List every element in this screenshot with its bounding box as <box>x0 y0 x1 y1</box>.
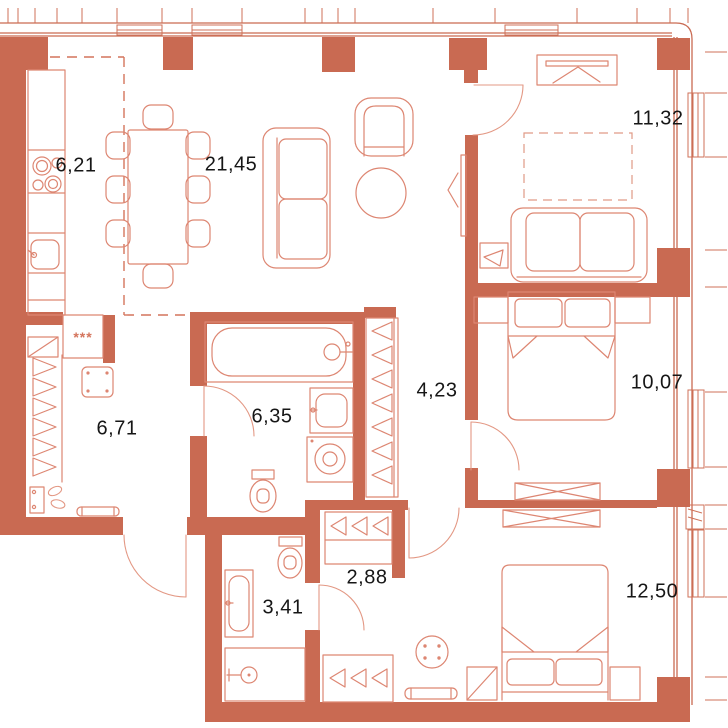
facade-ticks-right <box>705 52 727 700</box>
stool-icon <box>82 367 113 397</box>
room-area-label-shower-room: 3,41 <box>263 597 304 620</box>
bed-10-icon <box>508 292 615 420</box>
facade-ticks-top <box>8 8 688 23</box>
hallway-closet-icon <box>366 318 398 497</box>
room-area-label-bedroom-right: 10,07 <box>631 372 684 395</box>
shoe-cabinet-icon <box>28 337 58 357</box>
armchair-icon <box>355 98 413 156</box>
shoe-rack-icon <box>30 484 66 513</box>
wardrobe-sliding-icon <box>515 483 600 500</box>
shower-tray-icon <box>225 648 305 701</box>
room-area-label-hallway: 4,23 <box>417 380 458 403</box>
door-bedroom-10 <box>471 422 519 470</box>
kitchen-sink-icon <box>28 240 59 269</box>
washing-machine-icon <box>307 437 353 482</box>
room-area-label-hall: 2,88 <box>347 567 388 590</box>
wardrobe-hangers-icon <box>323 655 393 702</box>
walls <box>0 37 690 722</box>
nightstand-icon <box>610 667 640 700</box>
room-area-label-bedroom-top-right: 11,32 <box>632 108 683 131</box>
entry-closet-hangers-icon <box>33 355 62 482</box>
floor-plan: 6,21 21,45 11,32 6,71 6,35 4,23 10,07 3,… <box>0 0 728 728</box>
bench-icon <box>405 688 457 699</box>
bathtub-icon <box>205 322 353 382</box>
sofa-living-icon <box>263 128 330 268</box>
utility-box-symbol: *** <box>73 329 92 345</box>
bathroom-sink-icon <box>310 388 353 433</box>
room-area-label-bathroom: 6,35 <box>252 406 293 429</box>
kitchen-counter-icon <box>28 70 65 315</box>
room-area-label-living-dining: 21,45 <box>205 154 258 177</box>
shelf-icon <box>480 243 508 268</box>
tv-wall-icon <box>448 155 466 236</box>
nightstand-icon <box>474 297 508 323</box>
door-bedroom-top <box>473 85 523 135</box>
sofa-bedroom-icon <box>511 208 647 282</box>
bench-icon <box>77 507 119 516</box>
room-area-label-kitchen: 6,21 <box>56 155 97 178</box>
toilet-icon <box>278 537 302 578</box>
toilet-icon <box>250 470 276 512</box>
door-shower-room <box>319 585 364 630</box>
wardrobe-sliding-icon <box>503 510 600 527</box>
door-hall-bedroom-12 <box>409 508 459 558</box>
round-table-icon <box>416 636 448 668</box>
future-bed-dashed-zone <box>524 133 632 200</box>
dining-table-icon <box>106 105 210 288</box>
bed-12-icon <box>502 565 608 700</box>
shower-sink-icon <box>225 570 253 637</box>
door-bathroom <box>204 386 254 436</box>
door-entrance <box>124 535 186 597</box>
tv-stand-icon <box>537 55 617 85</box>
facade-window-frames-right <box>686 93 704 597</box>
wardrobe-hangers-icon <box>325 512 392 564</box>
nightstand-diagonal-icon <box>467 667 497 700</box>
floor-plan-drawing <box>0 0 728 728</box>
room-area-label-bedroom-bottom: 12,50 <box>626 581 679 604</box>
nightstand-icon <box>615 297 650 323</box>
coffee-table-icon <box>356 168 406 218</box>
kitchen-zone-dashed-line <box>50 57 190 315</box>
room-area-label-dressing: 6,71 <box>97 418 138 441</box>
